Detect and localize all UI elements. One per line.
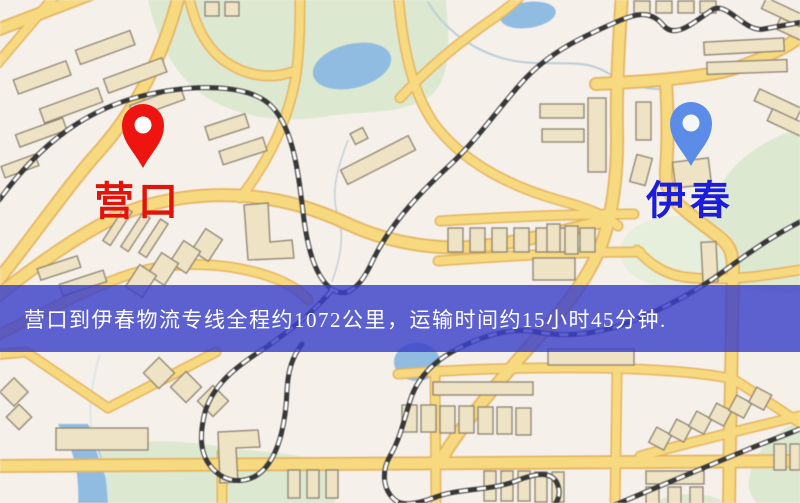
destination-marker [668,102,714,171]
destination-pin-icon [668,102,714,166]
map-canvas [0,0,800,503]
route-info-text: 营口到伊春物流专线全程约1072公里，运输时间约15小时45分钟. [0,304,667,334]
origin-label: 营口 [58,180,218,224]
origin-pin-icon [120,104,166,168]
route-info-banner: 营口到伊春物流专线全程约1072公里，运输时间约15小时45分钟. [0,285,800,352]
destination-label: 伊春 [610,179,770,223]
route-map-image: 营口 伊春 营口到伊春物流专线全程约1072公里，运输时间约15小时45分钟. [0,0,800,503]
origin-marker [120,104,166,173]
